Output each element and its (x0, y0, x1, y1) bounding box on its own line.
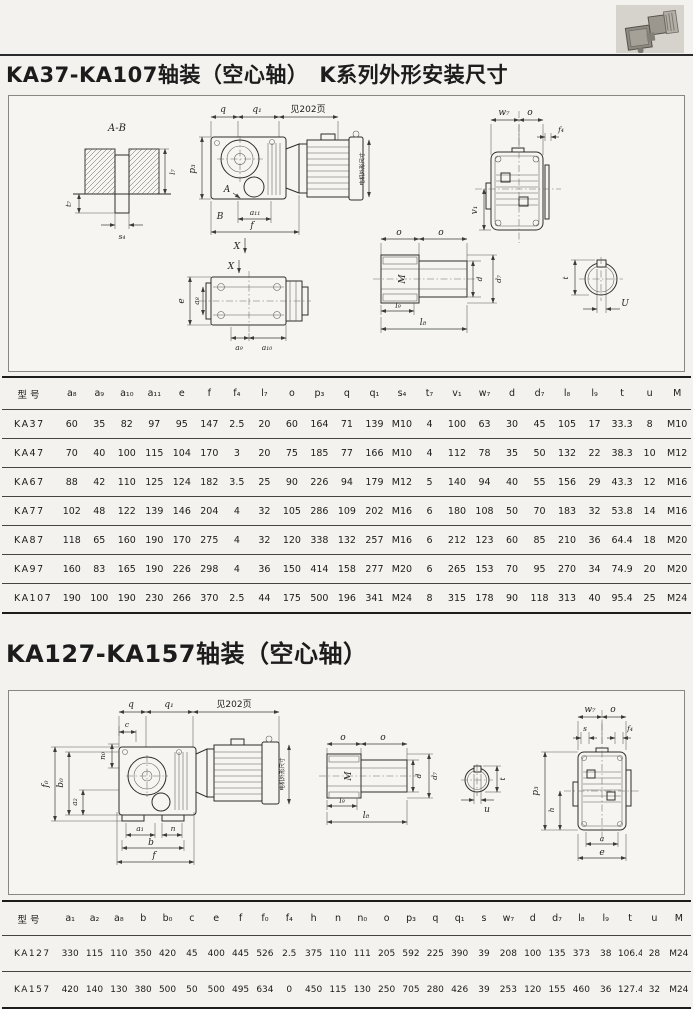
dim-label-l8: l₈ (420, 318, 427, 328)
value-cell: 95 (168, 410, 196, 439)
bore-section: t U (561, 257, 629, 313)
value-cell: 32 (642, 972, 666, 1009)
value-cell: 226 (306, 468, 334, 497)
dim-label-w7: w₇ (584, 705, 596, 715)
value-cell: 298 (196, 555, 224, 584)
value-cell: 125 (141, 468, 169, 497)
value-cell: 132 (333, 526, 361, 555)
column-header: e (204, 901, 228, 936)
column-header: s (472, 901, 496, 936)
dim-label-f: f (151, 851, 157, 861)
column-header: d₇ (545, 901, 569, 936)
value-cell: 158 (333, 555, 361, 584)
value-cell: 0 (277, 972, 301, 1009)
value-cell: 109 (333, 497, 361, 526)
value-cell: 22 (581, 439, 609, 468)
table-row: KA6788421101251241823.5259022694179M1251… (2, 468, 691, 497)
value-cell: 190 (141, 526, 169, 555)
dim-label-s: s (583, 724, 587, 733)
value-cell: 12 (636, 468, 664, 497)
column-header: a₁₀ (113, 377, 141, 410)
value-cell: 2.5 (223, 584, 251, 614)
catalog-page: KA37-KA107轴装（空心轴） K系列外形安装尺寸 A-B t₇ l₇ (0, 0, 693, 1009)
value-cell: 18 (636, 526, 664, 555)
value-cell: 341 (361, 584, 389, 614)
value-cell: 205 (374, 936, 398, 972)
value-cell: 115 (326, 972, 350, 1009)
value-cell: 39 (472, 936, 496, 972)
side-view-main: q q₁ 见202页 (188, 104, 369, 253)
column-header: u (636, 377, 664, 410)
value-cell: 32 (581, 497, 609, 526)
dim-label-s4: s₄ (119, 232, 126, 241)
value-cell: M12 (388, 468, 416, 497)
value-cell: 140 (82, 972, 106, 1009)
column-header: b (131, 901, 155, 936)
value-cell: 28 (642, 936, 666, 972)
column-header: o (278, 377, 306, 410)
value-cell: 45 (180, 936, 204, 972)
value-cell: 115 (141, 439, 169, 468)
value-cell: 226 (168, 555, 196, 584)
value-cell: 55 (526, 468, 554, 497)
model-cell: KA87 (2, 526, 58, 555)
value-cell: M10 (663, 410, 691, 439)
dim-label-o1: o (396, 228, 402, 238)
value-cell: 90 (498, 584, 526, 614)
column-header: q (423, 901, 447, 936)
value-cell: 277 (361, 555, 389, 584)
value-cell: 33.3 (608, 410, 636, 439)
value-cell: 400 (204, 936, 228, 972)
column-header: a₁₁ (141, 377, 169, 410)
table-row: KA7710248122139146204432105286109202M166… (2, 497, 691, 526)
dim-label-u: u (484, 805, 490, 815)
value-cell: 88 (58, 468, 86, 497)
value-cell: 94 (333, 468, 361, 497)
value-cell: 4 (223, 526, 251, 555)
column-header-model: 型号 (2, 377, 58, 410)
value-cell: 20 (251, 410, 279, 439)
value-cell: 350 (131, 936, 155, 972)
value-cell: 118 (58, 526, 86, 555)
value-cell: 43.3 (608, 468, 636, 497)
value-cell: 110 (113, 468, 141, 497)
column-header: c (180, 901, 204, 936)
view-marker-a: A (223, 185, 231, 195)
value-cell: 202 (361, 497, 389, 526)
value-cell: 2.5 (223, 410, 251, 439)
value-cell: 370 (196, 584, 224, 614)
value-cell: 118 (526, 584, 554, 614)
dim-label-l9: l₉ (339, 796, 344, 805)
value-cell: 250 (374, 972, 398, 1009)
view-direction-x: X (233, 242, 241, 252)
value-cell: 212 (443, 526, 471, 555)
dim-label-o-rear: o (610, 705, 616, 715)
value-cell: 3.5 (223, 468, 251, 497)
column-header: p₃ (399, 901, 423, 936)
value-cell: 338 (306, 526, 334, 555)
model-cell: KA127 (2, 936, 58, 972)
value-cell: 82 (113, 410, 141, 439)
value-cell: 190 (141, 555, 169, 584)
column-header: f (196, 377, 224, 410)
value-cell: 4 (223, 555, 251, 584)
side-view-main-2: q q₁ 见202页 c n₀ (41, 699, 289, 865)
value-cell: 426 (448, 972, 472, 1009)
column-header: d (498, 377, 526, 410)
value-cell: 420 (58, 972, 82, 1009)
drawing-box-ka37-ka107: A-B t₇ l₇ s₄ q q₁ (8, 95, 685, 372)
value-cell: 225 (423, 936, 447, 972)
dim-label-l7: l₇ (168, 169, 177, 174)
value-cell: 330 (58, 936, 82, 972)
value-cell: 178 (471, 584, 499, 614)
column-header: f₀ (253, 901, 277, 936)
dim-label-o1: o (340, 733, 346, 743)
value-cell: 122 (113, 497, 141, 526)
dim-label-l8: l₈ (363, 811, 370, 821)
table-row: KA4770401001151041703207518577166M104112… (2, 439, 691, 468)
dim-label-t7: t₇ (64, 201, 73, 207)
value-cell: 156 (553, 468, 581, 497)
value-cell: 313 (553, 584, 581, 614)
thread-label-m-2: M (344, 771, 354, 782)
dim-label-a1: a₁ (136, 824, 143, 833)
column-header: b₀ (155, 901, 179, 936)
value-cell: 230 (141, 584, 169, 614)
value-cell: 108 (471, 497, 499, 526)
value-cell: 705 (399, 972, 423, 1009)
value-cell: 182 (196, 468, 224, 497)
value-cell: 38 (594, 936, 618, 972)
column-header: d₇ (526, 377, 554, 410)
value-cell: 130 (350, 972, 374, 1009)
thread-label-m: M (398, 274, 408, 285)
column-header: w₇ (496, 901, 520, 936)
column-header: a₈ (107, 901, 131, 936)
value-cell: M12 (663, 439, 691, 468)
value-cell: 380 (131, 972, 155, 1009)
value-cell: 526 (253, 936, 277, 972)
value-cell: 270 (553, 555, 581, 584)
value-cell: 40 (86, 439, 114, 468)
table-row: KA8711865160190170275432120338132257M166… (2, 526, 691, 555)
value-cell: 39 (472, 972, 496, 1009)
value-cell: 500 (155, 972, 179, 1009)
value-cell: 70 (526, 497, 554, 526)
value-cell: 85 (526, 526, 554, 555)
value-cell: 60 (498, 526, 526, 555)
ka37-ka107-dimension-table: 型号a₈a₉a₁₀a₁₁eff₄l₇op₃qq₁s₄t₇v₁w₇dd₇l₈l₉t… (2, 376, 691, 614)
value-cell: 139 (361, 410, 389, 439)
value-cell: 6 (416, 555, 444, 584)
column-header: u (642, 901, 666, 936)
value-cell: 175 (278, 584, 306, 614)
value-cell: 111 (350, 936, 374, 972)
section-title-2: KA127-KA157轴装（空心轴） (6, 634, 368, 669)
column-header: n₀ (350, 901, 374, 936)
value-cell: 36 (251, 555, 279, 584)
dim-label-b: b (148, 838, 154, 848)
column-header: q (333, 377, 361, 410)
value-cell: 185 (306, 439, 334, 468)
value-cell: 105 (278, 497, 306, 526)
value-cell: 30 (498, 410, 526, 439)
column-header: f (228, 901, 252, 936)
value-cell: 97 (141, 410, 169, 439)
value-cell: 17 (581, 410, 609, 439)
dim-label-a8: a₈ (192, 297, 201, 304)
value-cell: 75 (278, 439, 306, 468)
dim-label-d7: d₇ (430, 772, 439, 780)
column-header: e (168, 377, 196, 410)
value-cell: 65 (86, 526, 114, 555)
value-cell: 160 (58, 555, 86, 584)
value-cell: 375 (301, 936, 325, 972)
dim-label-a9: a₉ (235, 343, 242, 352)
dim-label-p3: p₃ (188, 164, 198, 174)
value-cell: 139 (141, 497, 169, 526)
value-cell: 127.4 (618, 972, 642, 1009)
bore-section-2: t u (461, 764, 507, 815)
dim-label-q1: q₁ (164, 700, 173, 710)
value-cell: M16 (388, 497, 416, 526)
value-cell: 164 (306, 410, 334, 439)
column-header: M (667, 901, 691, 936)
value-cell: 147 (196, 410, 224, 439)
dim-label-o2: o (438, 228, 444, 238)
value-cell: 286 (306, 497, 334, 526)
table-row: KA3760358297951472.5206016471139M1041006… (2, 410, 691, 439)
value-cell: 4 (416, 410, 444, 439)
value-cell: 35 (86, 410, 114, 439)
value-cell: 373 (569, 936, 593, 972)
column-header: v₁ (443, 377, 471, 410)
top-view: X e a₈ a₉ a₁₀ (177, 260, 311, 352)
value-cell: 48 (86, 497, 114, 526)
see-page-note: 见202页 (290, 104, 325, 115)
view-direction-x2: X (227, 262, 235, 272)
rear-view-2: w₇ o s f₄ (531, 705, 639, 861)
column-header: o (374, 901, 398, 936)
motor-size-note: 电机外形尺寸 (358, 152, 366, 186)
value-cell: 32 (251, 497, 279, 526)
value-cell: M20 (388, 555, 416, 584)
value-cell: 77 (333, 439, 361, 468)
value-cell: 32 (251, 526, 279, 555)
value-cell: 90 (278, 468, 306, 497)
value-cell: 112 (443, 439, 471, 468)
dim-label-c: c (125, 720, 130, 729)
value-cell: 208 (496, 936, 520, 972)
column-header-model: 型号 (2, 901, 58, 936)
dim-label-n: n (171, 824, 176, 833)
value-cell: 34 (581, 555, 609, 584)
header-rule (0, 54, 693, 56)
value-cell: 83 (86, 555, 114, 584)
value-cell: 135 (545, 936, 569, 972)
value-cell: 40 (581, 584, 609, 614)
table-row: KA9716083165190226298436150414158277M206… (2, 555, 691, 584)
value-cell: 20 (636, 555, 664, 584)
value-cell: 180 (443, 497, 471, 526)
value-cell: M24 (388, 584, 416, 614)
dim-label-a10: a₁₀ (262, 343, 273, 352)
dim-label-f4: f₄ (626, 724, 633, 733)
column-header: d (521, 901, 545, 936)
value-cell: 64.4 (608, 526, 636, 555)
value-cell: 74.9 (608, 555, 636, 584)
value-cell: 10 (636, 439, 664, 468)
value-cell: 53.8 (608, 497, 636, 526)
column-header: t (618, 901, 642, 936)
value-cell: 275 (196, 526, 224, 555)
rear-view: w₇ o f₄ (470, 108, 564, 243)
column-header: a₂ (82, 901, 106, 936)
value-cell: 170 (196, 439, 224, 468)
dim-label-a11: a₁₁ (250, 208, 261, 217)
value-cell: M16 (663, 468, 691, 497)
column-header: a₈ (58, 377, 86, 410)
value-cell: 130 (107, 972, 131, 1009)
value-cell: 210 (553, 526, 581, 555)
model-cell: KA157 (2, 972, 58, 1009)
value-cell: 44 (251, 584, 279, 614)
column-header: t (608, 377, 636, 410)
dim-label-q: q (220, 105, 226, 115)
dim-label-w7: w₇ (498, 108, 510, 118)
value-cell: 120 (521, 972, 545, 1009)
value-cell: M10 (388, 410, 416, 439)
value-cell: 100 (521, 936, 545, 972)
dim-label-f: f (249, 221, 255, 231)
dim-label-d: d (414, 773, 423, 778)
value-cell: 166 (361, 439, 389, 468)
value-cell: 35 (498, 439, 526, 468)
value-cell: 153 (471, 555, 499, 584)
value-cell: 146 (168, 497, 196, 526)
value-cell: 280 (423, 972, 447, 1009)
model-cell: KA97 (2, 555, 58, 584)
drawing-ka127-ka157: q q₁ 见202页 c n₀ (9, 691, 684, 894)
value-cell: 36 (581, 526, 609, 555)
value-cell: 40 (498, 468, 526, 497)
column-header: f₄ (223, 377, 251, 410)
dim-label-t: t (561, 276, 570, 280)
value-cell: M16 (388, 526, 416, 555)
value-cell: 36 (594, 972, 618, 1009)
dim-label-o-rear: o (527, 108, 533, 118)
value-cell: 104 (168, 439, 196, 468)
value-cell: 190 (113, 584, 141, 614)
value-cell: M24 (663, 584, 691, 614)
column-header: w₇ (471, 377, 499, 410)
value-cell: 50 (180, 972, 204, 1009)
column-header: f₄ (277, 901, 301, 936)
model-cell: KA47 (2, 439, 58, 468)
column-header: h (301, 901, 325, 936)
value-cell: 204 (196, 497, 224, 526)
value-cell: 106.4 (618, 936, 642, 972)
dim-label-e: e (599, 848, 604, 858)
dim-label-b0: b₀ (56, 778, 66, 788)
value-cell: 6 (416, 497, 444, 526)
column-header: p₃ (306, 377, 334, 410)
value-cell: 315 (443, 584, 471, 614)
value-cell: M10 (388, 439, 416, 468)
model-cell: KA77 (2, 497, 58, 526)
ka127-ka157-dimension-table: 型号a₁a₂a₈bb₀ceff₀f₄hnn₀op₃qq₁sw₇dd₇l₈l₉tu… (2, 900, 691, 1009)
dim-label-o2: o (380, 733, 386, 743)
model-cell: KA107 (2, 584, 58, 614)
column-header: s₄ (388, 377, 416, 410)
column-header: t₇ (416, 377, 444, 410)
value-cell: 123 (471, 526, 499, 555)
value-cell: 132 (553, 439, 581, 468)
drawing-box-ka127-ka157: q q₁ 见202页 c n₀ (8, 690, 685, 895)
value-cell: 257 (361, 526, 389, 555)
value-cell: 50 (526, 439, 554, 468)
value-cell: 95 (526, 555, 554, 584)
value-cell: 71 (333, 410, 361, 439)
value-cell: 105 (553, 410, 581, 439)
value-cell: 45 (526, 410, 554, 439)
value-cell: 50 (498, 497, 526, 526)
section-title: A-B (107, 123, 126, 134)
column-header: q₁ (448, 901, 472, 936)
value-cell: 100 (113, 439, 141, 468)
value-cell: 2.5 (277, 936, 301, 972)
value-cell: 170 (168, 526, 196, 555)
value-cell: 460 (569, 972, 593, 1009)
motor-size-note-2: 电机外形尺寸 (278, 757, 286, 791)
dim-label-n0: n₀ (98, 752, 107, 760)
dim-label-f4: f₄ (557, 125, 564, 134)
value-cell: 70 (58, 439, 86, 468)
header-row: 型号a₁a₂a₈bb₀ceff₀f₄hnn₀op₃qq₁sw₇dd₇l₈l₉tu… (2, 901, 691, 936)
column-header: n (326, 901, 350, 936)
drawing-ka37-ka107: A-B t₇ l₇ s₄ q q₁ (9, 96, 684, 371)
see-page-note-2: 见202页 (216, 699, 251, 710)
shaft-detail-2: o o M d d₇ l₉ l₈ (319, 733, 439, 825)
value-cell: M16 (663, 497, 691, 526)
model-cell: KA67 (2, 468, 58, 497)
product-photo (616, 5, 684, 53)
value-cell: 160 (113, 526, 141, 555)
column-header: a₉ (86, 377, 114, 410)
value-cell: 25 (251, 468, 279, 497)
value-cell: 38.3 (608, 439, 636, 468)
dim-label-v1: v₁ (470, 206, 480, 215)
value-cell: 95.4 (608, 584, 636, 614)
value-cell: 253 (496, 972, 520, 1009)
value-cell: 4 (223, 497, 251, 526)
value-cell: 60 (58, 410, 86, 439)
value-cell: 500 (306, 584, 334, 614)
value-cell: 150 (278, 555, 306, 584)
value-cell: 414 (306, 555, 334, 584)
dim-label-t: t (498, 777, 507, 781)
value-cell: 3 (223, 439, 251, 468)
value-cell: 124 (168, 468, 196, 497)
value-cell: 6 (416, 526, 444, 555)
dim-label-u: U (621, 299, 629, 309)
value-cell: 29 (581, 468, 609, 497)
dim-label-a2: a₂ (70, 798, 79, 805)
section-view-ab: A-B t₇ l₇ s₄ (64, 123, 177, 241)
